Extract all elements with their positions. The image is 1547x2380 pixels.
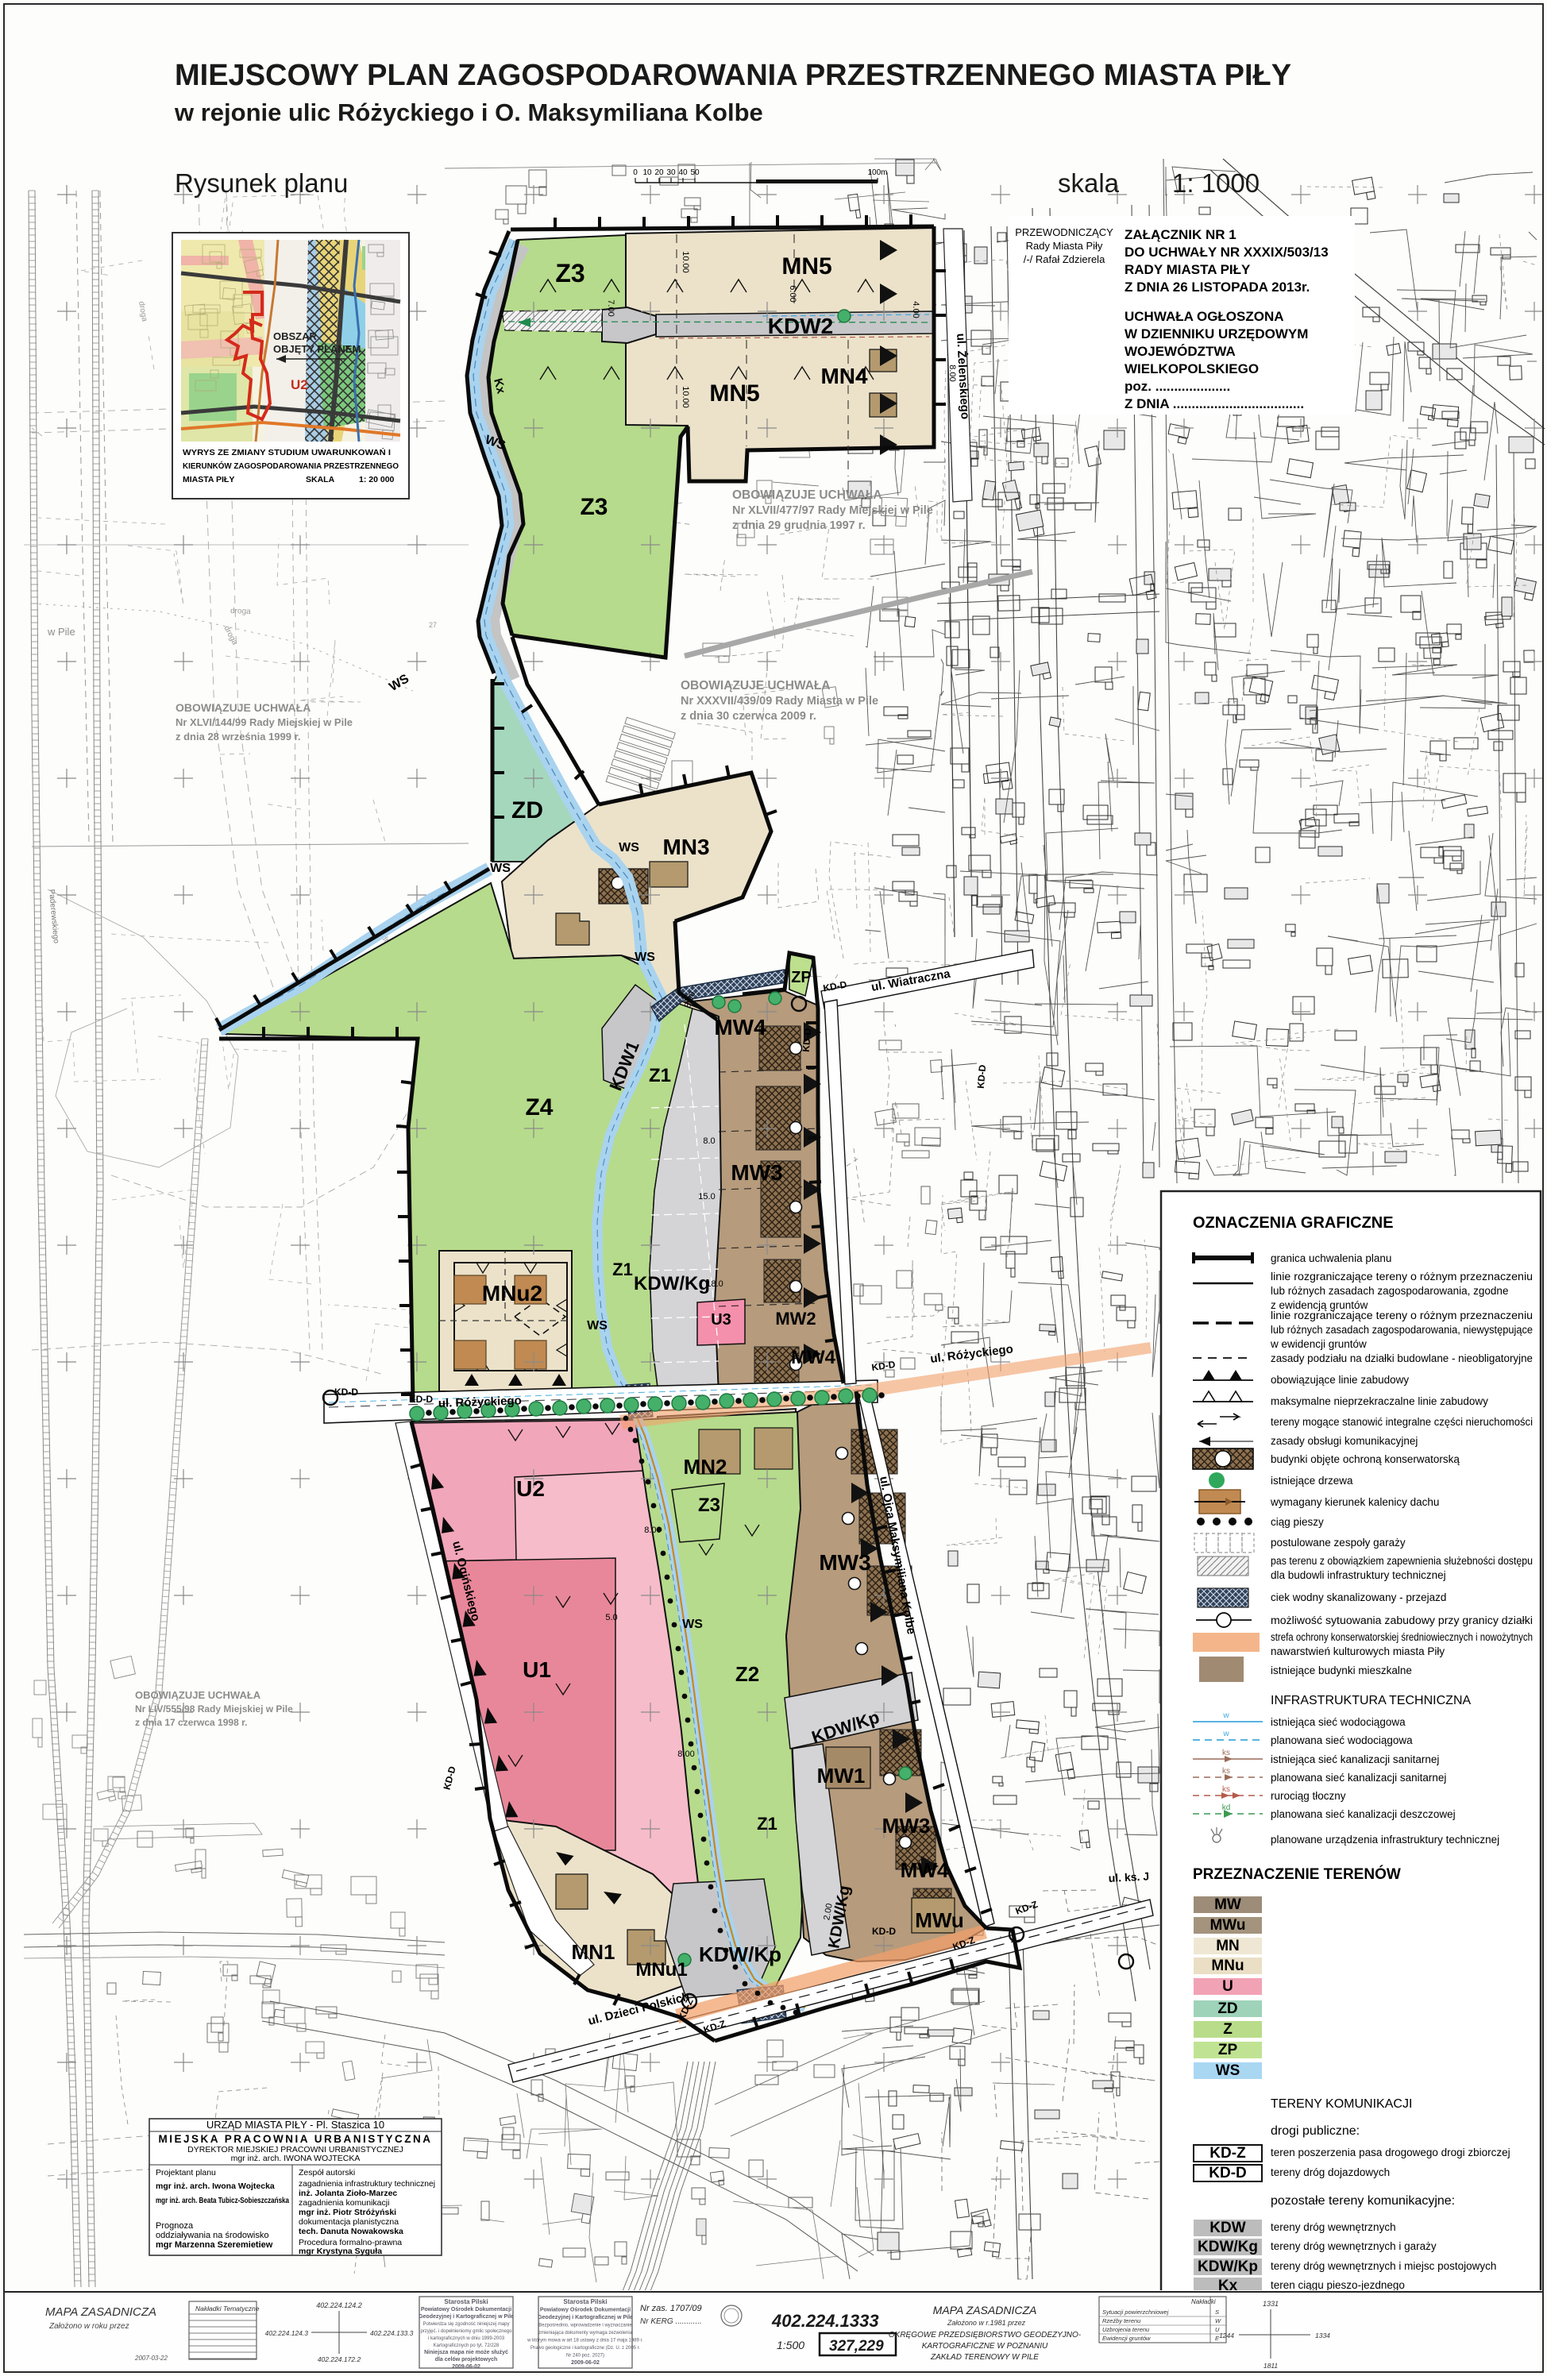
svg-text:w rejonie ulic Różyckiego i O.: w rejonie ulic Różyckiego i O. Maksymili… — [174, 98, 763, 126]
svg-text:10.00: 10.00 — [681, 386, 690, 408]
svg-text:1331: 1331 — [1263, 2300, 1279, 2308]
svg-text:8.00: 8.00 — [947, 365, 957, 381]
svg-text:MWu: MWu — [1209, 1917, 1245, 1934]
svg-text:tereny dróg wewnętrznych i gar: tereny dróg wewnętrznych i garaży — [1271, 2240, 1437, 2252]
svg-text:MIEJSKA PRACOWNIA URBANISTYCZN: MIEJSKA PRACOWNIA URBANISTYCZNA — [158, 2133, 432, 2145]
svg-text:KD-D: KD-D — [975, 1064, 989, 1089]
svg-text:dokumentacja planistyczna: dokumentacja planistyczna — [299, 2217, 399, 2227]
svg-text:Uzbrojenia terenu: Uzbrojenia terenu — [1102, 2326, 1150, 2333]
svg-text:OBOWIĄZUJE UCHWAŁA: OBOWIĄZUJE UCHWAŁA — [681, 679, 831, 692]
svg-text:KD-D: KD-D — [409, 1394, 433, 1405]
svg-text:mgr inż. arch. Beata Tubicz-So: mgr inż. arch. Beata Tubicz-Sobieszczańs… — [156, 2196, 289, 2205]
svg-text:8.0: 8.0 — [703, 1136, 715, 1146]
svg-text:granica uchwalenia planu: granica uchwalenia planu — [1271, 1252, 1391, 1264]
svg-text:1811: 1811 — [1263, 2362, 1279, 2370]
svg-text:MIASTA PIŁY: MIASTA PIŁY — [183, 475, 234, 484]
svg-text:MN2: MN2 — [684, 1455, 727, 1479]
svg-text:1: 1000: 1: 1000 — [1172, 168, 1260, 198]
svg-text:MWu: MWu — [915, 1908, 964, 1932]
svg-text:pas terenu z obowiązkiem zapew: pas terenu z obowiązkiem zapewnienia słu… — [1271, 1555, 1533, 1567]
svg-text:OBJĘTY PLANEM: OBJĘTY PLANEM — [273, 343, 361, 355]
svg-text:Prawo geologiczne i kartografi: Prawo geologiczne i kartograficzne (Dz. … — [530, 2346, 640, 2351]
svg-text:MNu1: MNu1 — [635, 1959, 687, 1981]
svg-text:istniejąca sieć wodociągowa: istniejąca sieć wodociągowa — [1271, 1716, 1406, 1728]
svg-text:WS: WS — [490, 862, 511, 875]
svg-text:OBOWIĄZUJE UCHWAŁA: OBOWIĄZUJE UCHWAŁA — [732, 488, 882, 502]
svg-text:ZAŁĄCZNIK NR 1: ZAŁĄCZNIK NR 1 — [1125, 227, 1236, 242]
svg-text:MN1: MN1 — [572, 1940, 615, 1964]
svg-text:Z: Z — [1223, 2021, 1233, 2038]
svg-text:KD-D: KD-D — [1209, 2165, 1247, 2181]
svg-text:z dnia 17 czerwca 1998 r.: z dnia 17 czerwca 1998 r. — [135, 1717, 247, 1728]
svg-text:planowana sieć kanalizacji des: planowana sieć kanalizacji deszczowej — [1271, 1808, 1456, 1820]
svg-text:ul. ks. J: ul. ks. J — [1108, 1869, 1149, 1884]
svg-text:MW3: MW3 — [731, 1160, 782, 1185]
svg-text:w ewidencji gruntów: w ewidencji gruntów — [1270, 1338, 1367, 1350]
svg-text:planowane urządzenia infrastru: planowane urządzenia infrastruktury tech… — [1271, 1834, 1499, 1846]
svg-text:Bezpośrednio, wprowadzenie i w: Bezpośrednio, wprowadzenie i wyznaczanie — [538, 2324, 632, 2328]
svg-text:Nakładki: Nakładki — [1191, 2298, 1216, 2305]
svg-text:Z3: Z3 — [555, 259, 584, 287]
svg-text:10.00: 10.00 — [681, 251, 690, 273]
svg-text:z dnia 29 grudnia 1997 r.: z dnia 29 grudnia 1997 r. — [732, 519, 866, 532]
svg-text:Z1: Z1 — [612, 1259, 633, 1279]
svg-text:8.00: 8.00 — [644, 1526, 661, 1535]
svg-text:tereny mogące stanowić integra: tereny mogące stanowić integralne części… — [1271, 1416, 1533, 1428]
svg-text:zasady obsługi komunikacyjnej: zasady obsługi komunikacyjnej — [1271, 1435, 1418, 1447]
svg-text:linie rozgraniczające tereny o: linie rozgraniczające tereny o różnym pr… — [1271, 1310, 1533, 1321]
svg-text:/-/ Rafał Zdzierela: /-/ Rafał Zdzierela — [1024, 253, 1105, 265]
svg-text:w Pile: w Pile — [47, 626, 75, 638]
svg-text:OKRĘGOWE PRZEDSIĘBIORSTWO GEOD: OKRĘGOWE PRZEDSIĘBIORSTWO GEODEZYJNO- — [889, 2331, 1082, 2339]
svg-text:Geodezyjnej i Kartograficznej: Geodezyjnej i Kartograficznej w Pile — [538, 2315, 633, 2320]
svg-text:OZNACZENIA GRAFICZNE: OZNACZENIA GRAFICZNE — [1193, 1214, 1394, 1232]
svg-text:WIELKOPOLSKIEGO: WIELKOPOLSKIEGO — [1125, 361, 1259, 376]
svg-text:postulowane zespoły garaży: postulowane zespoły garaży — [1271, 1537, 1406, 1549]
svg-text:linie rozgraniczające tereny o: linie rozgraniczające tereny o różnym pr… — [1271, 1271, 1533, 1283]
svg-text:Potwierdza się zgodność niniej: Potwierdza się zgodność niniejszej mapy — [422, 2322, 509, 2327]
svg-text:MN3: MN3 — [662, 835, 709, 859]
svg-text:U3: U3 — [711, 1311, 731, 1329]
svg-text:ZP: ZP — [1218, 2042, 1238, 2058]
svg-text:20: 20 — [654, 168, 664, 177]
svg-text:KDW2: KDW2 — [768, 314, 833, 338]
svg-text:KD-Z: KD-Z — [1209, 2145, 1246, 2162]
svg-text:tech. Danuta Nowakowska: tech. Danuta Nowakowska — [299, 2227, 403, 2236]
svg-text:w: w — [1222, 1711, 1229, 1720]
svg-text:Geodezyjnej i Kartograficznej: Geodezyjnej i Kartograficznej w Pile — [419, 2314, 514, 2320]
svg-text:KDW/Kp: KDW/Kp — [699, 1942, 781, 1966]
svg-text:MW1: MW1 — [817, 1764, 866, 1788]
svg-text:MW4: MW4 — [791, 1347, 836, 1368]
svg-text:MN4: MN4 — [820, 364, 868, 388]
svg-text:327,229: 327,229 — [829, 2338, 884, 2355]
svg-text:droga: droga — [230, 607, 251, 616]
svg-text:ciek wodny skanalizowany - prz: ciek wodny skanalizowany - przejazd — [1271, 1591, 1446, 1603]
svg-text:Rady Miasta Piły: Rady Miasta Piły — [1026, 240, 1103, 252]
svg-text:MN5: MN5 — [709, 380, 759, 407]
svg-text:ks: ks — [1222, 1749, 1230, 1757]
svg-text:ZP: ZP — [791, 969, 812, 986]
svg-text:Niniejsza mapa nie może służyć: Niniejsza mapa nie może służyć — [424, 2350, 508, 2355]
svg-text:U1: U1 — [523, 1657, 551, 1682]
svg-text:zagadnienia infrastruktury tec: zagadnienia infrastruktury technicznej — [299, 2179, 435, 2189]
svg-text:KDW/Kp: KDW/Kp — [1198, 2258, 1258, 2275]
svg-text:W DZIENNIKU URZĘDOWYM: W DZIENNIKU URZĘDOWYM — [1125, 326, 1308, 341]
svg-text:tereny dróg dojazdowych: tereny dróg dojazdowych — [1271, 2166, 1390, 2178]
svg-text:MW3: MW3 — [882, 1814, 931, 1838]
svg-text:402.224.1333: 402.224.1333 — [771, 2311, 879, 2331]
svg-text:pozostałe tereny komunikacyjne: pozostałe tereny komunikacyjne: — [1271, 2194, 1455, 2208]
svg-text:obowiązujące linie zabudowy: obowiązujące linie zabudowy — [1271, 1374, 1409, 1386]
svg-text:MAPA ZASADNICZA: MAPA ZASADNICZA — [933, 2304, 1037, 2316]
svg-text:skala: skala — [1058, 168, 1120, 198]
svg-text:istniejące budynki mieszkalne: istniejące budynki mieszkalne — [1271, 1664, 1412, 1676]
svg-text:Rysunek planu: Rysunek planu — [175, 168, 348, 198]
svg-text:402.224.133.3: 402.224.133.3 — [370, 2329, 414, 2337]
svg-text:MW2: MW2 — [775, 1309, 816, 1329]
svg-text:Nr 240 poz. 2027): Nr 240 poz. 2027) — [566, 2354, 604, 2359]
svg-text:nawarstwień kulturowych miasta: nawarstwień kulturowych miasta Piły — [1271, 1645, 1445, 1657]
svg-text:Nr XLVII/477/97 Rady Miejskiej: Nr XLVII/477/97 Rady Miejskiej w Pile — [732, 504, 933, 517]
svg-text:RADY MIASTA PIŁY: RADY MIASTA PIŁY — [1125, 262, 1251, 277]
svg-text:mgr inż. arch. IWONA WOJTECKA: mgr inż. arch. IWONA WOJTECKA — [231, 2154, 361, 2163]
svg-text:ZAKŁAD TERENOWY W PILE: ZAKŁAD TERENOWY W PILE — [930, 2353, 1039, 2362]
svg-text:Z1: Z1 — [649, 1065, 671, 1086]
svg-text:KDW/Kg: KDW/Kg — [634, 1273, 710, 1294]
svg-text:MIEJSCOWY PLAN ZAGOSPODAROWANI: MIEJSCOWY PLAN ZAGOSPODAROWANIA PRZESTRZ… — [175, 59, 1291, 92]
svg-text:U2: U2 — [516, 1476, 545, 1501]
svg-text:1: 20 000: 1: 20 000 — [359, 475, 395, 484]
svg-text:1334: 1334 — [1315, 2332, 1330, 2339]
svg-text:istniejąca sieć kanalizacji sa: istniejąca sieć kanalizacji sanitarnej — [1271, 1753, 1439, 1765]
svg-text:teren ciągu pieszo-jezdnego: teren ciągu pieszo-jezdnego — [1271, 2279, 1405, 2291]
svg-text:Zespół autorski: Zespół autorski — [299, 2168, 355, 2177]
svg-text:WYRYS ZE ZMIANY STUDIUM UWARUN: WYRYS ZE ZMIANY STUDIUM UWARUNKOWAŃ I — [183, 447, 391, 457]
svg-text:Założono w r.1981 przez: Założono w r.1981 przez — [947, 2319, 1026, 2327]
svg-text:7.00: 7.00 — [606, 299, 615, 316]
svg-text:KD-D: KD-D — [801, 1028, 814, 1052]
svg-text:PRZEWODNICZĄCY: PRZEWODNICZĄCY — [1015, 226, 1113, 238]
svg-text:teren poszerzenia pasa drogowe: teren poszerzenia pasa drogowego drogi z… — [1271, 2147, 1510, 2158]
svg-text:10: 10 — [642, 168, 652, 177]
svg-text:OBOWIĄZUJE UCHWAŁA: OBOWIĄZUJE UCHWAŁA — [135, 1689, 261, 1701]
svg-text:402.224.124.3: 402.224.124.3 — [265, 2329, 309, 2337]
svg-text:z dnia 30 czerwca 2009 r.: z dnia 30 czerwca 2009 r. — [681, 710, 816, 723]
svg-text:ZD: ZD — [511, 797, 543, 824]
svg-text:INFRASTRUKTURA TECHNICZNA: INFRASTRUKTURA TECHNICZNA — [1271, 1694, 1471, 1707]
svg-text:w którym mowa w art 18 ustawy: w którym mowa w art 18 ustawy z dnia 17 … — [527, 2339, 643, 2343]
svg-text:KDW/Kg: KDW/Kg — [1198, 2239, 1258, 2255]
svg-text:18.0: 18.0 — [706, 1279, 723, 1289]
svg-text:MW4: MW4 — [714, 1015, 766, 1040]
svg-text:U: U — [1222, 1978, 1233, 1995]
svg-text:1:500: 1:500 — [777, 2339, 804, 2351]
svg-text:istniejące drzewa: istniejące drzewa — [1271, 1475, 1353, 1487]
svg-text:W: W — [1215, 2317, 1221, 2324]
svg-text:możliwość sytuowania zabudowy: możliwość sytuowania zabudowy przy grani… — [1271, 1614, 1533, 1626]
svg-text:oddziaływania na środowisko: oddziaływania na środowisko — [156, 2231, 268, 2240]
svg-text:ZD: ZD — [1217, 2000, 1237, 2017]
svg-text:Z2: Z2 — [735, 1662, 759, 1686]
svg-text:dla budowli infrastruktury tec: dla budowli infrastruktury technicznej — [1271, 1569, 1446, 1581]
svg-text:Z1: Z1 — [757, 1814, 777, 1834]
svg-text:lub różnych zasadach zagospoda: lub różnych zasadach zagospodarowania, z… — [1271, 1285, 1508, 1297]
svg-text:WS: WS — [682, 1618, 703, 1631]
svg-text:U2: U2 — [291, 377, 308, 392]
svg-text:WOJEWÓDZTWA: WOJEWÓDZTWA — [1125, 344, 1236, 359]
svg-text:Z DNIA 26 LISTOPADA 2013r.: Z DNIA 26 LISTOPADA 2013r. — [1125, 280, 1310, 295]
svg-text:2009-06-02: 2009-06-02 — [452, 2364, 480, 2370]
svg-text:6.00: 6.00 — [788, 285, 797, 302]
svg-text:2009-06-02: 2009-06-02 — [571, 2360, 600, 2366]
svg-text:wymagany kierunek kalenicy dac: wymagany kierunek kalenicy dachu — [1270, 1496, 1439, 1508]
svg-text:inż. Jolanta Zioło-Marzec: inż. Jolanta Zioło-Marzec — [299, 2189, 397, 2198]
svg-text:30: 30 — [666, 168, 676, 177]
svg-text:27: 27 — [429, 621, 437, 629]
svg-text:DO UCHWAŁY NR XXXIX/503/13: DO UCHWAŁY NR XXXIX/503/13 — [1125, 245, 1329, 260]
svg-text:Powiatowy Ośrodek Dokumentacji: Powiatowy Ośrodek Dokumentacji — [421, 2307, 511, 2312]
svg-text:KD-D: KD-D — [872, 1926, 896, 1937]
svg-text:Z3: Z3 — [580, 494, 608, 520]
svg-text:KDW: KDW — [1209, 2220, 1245, 2236]
svg-text:MNu2: MNu2 — [482, 1281, 542, 1306]
svg-text:MN5: MN5 — [781, 253, 831, 280]
svg-text:UCHWAŁA OGŁOSZONA: UCHWAŁA OGŁOSZONA — [1125, 309, 1284, 324]
svg-text:402.224.124.2: 402.224.124.2 — [316, 2301, 362, 2309]
svg-text:budynki objęte ochroną konserw: budynki objęte ochroną konserwatorską — [1271, 1453, 1460, 1465]
svg-text:0: 0 — [633, 168, 638, 177]
svg-text:przyjęć. i dopełnieniomy gmlic: przyjęć. i dopełnieniomy gmlic społeczne… — [420, 2329, 512, 2334]
svg-text:PRZEZNACZENIE TERENÓW: PRZEZNACZENIE TERENÓW — [1193, 1865, 1401, 1883]
svg-text:KARTOGRAFICZNE W POZNANIU: KARTOGRAFICZNE W POZNANIU — [922, 2342, 1048, 2351]
svg-text:WS: WS — [587, 1319, 608, 1333]
svg-text:tereny dróg wewnętrznych i mie: tereny dróg wewnętrznych i miejsc postoj… — [1271, 2260, 1496, 2272]
svg-text:w: w — [1222, 1730, 1229, 1738]
svg-text:WS: WS — [619, 841, 639, 854]
svg-text:zagadnienia komunikacji: zagadnienia komunikacji — [299, 2198, 389, 2208]
svg-text:4.00: 4.00 — [911, 301, 920, 318]
svg-text:MAPA ZASADNICZA: MAPA ZASADNICZA — [45, 2305, 156, 2319]
svg-text:maksymalne nieprzekraczalne li: maksymalne nieprzekraczalne linie zabudo… — [1271, 1395, 1488, 1407]
svg-text:TERENY KOMUNIKACJI: TERENY KOMUNIKACJI — [1271, 2097, 1412, 2111]
svg-text:100m: 100m — [867, 168, 887, 177]
svg-text:planowana sieć wodociągowa: planowana sieć wodociągowa — [1271, 1734, 1413, 1746]
svg-text:S: S — [1215, 2309, 1219, 2316]
svg-text:i kartograficznych w dniu 199: i kartograficznych w dniu 1999-2003 — [428, 2336, 505, 2341]
svg-text:Nr LIV/555/98 Rady Miejskiej w: Nr LIV/555/98 Rady Miejskiej w Pile — [135, 1703, 293, 1715]
svg-text:5.0: 5.0 — [605, 1613, 617, 1622]
svg-text:lub różnych zasadach zagospoda: lub różnych zasadach zagospodarowania, n… — [1271, 1324, 1533, 1336]
svg-text:MNu: MNu — [1211, 1958, 1244, 1974]
svg-text:SKALA: SKALA — [306, 475, 335, 484]
svg-text:Nr zas. 1707/09: Nr zas. 1707/09 — [640, 2304, 702, 2313]
svg-text:50: 50 — [690, 168, 700, 177]
svg-text:Sytuacji powierzchniowej: Sytuacji powierzchniowej — [1102, 2309, 1169, 2316]
svg-text:Nr XXXVII/439/09 Rady Miasta w: Nr XXXVII/439/09 Rady Miasta w Pile — [681, 695, 878, 708]
svg-text:Z3: Z3 — [698, 1495, 720, 1516]
svg-text:WS: WS — [635, 951, 655, 964]
svg-text:mgr inż. arch. Iwona Wojtecka: mgr inż. arch. Iwona Wojtecka — [156, 2181, 275, 2191]
svg-text:WS: WS — [1216, 2062, 1240, 2079]
svg-text:MW3: MW3 — [819, 1550, 870, 1575]
svg-text:Nr XLVI/144/99 Rady Miejskiej: Nr XLVI/144/99 Rady Miejskiej w Pile — [176, 716, 353, 728]
svg-text:ks: ks — [1222, 1785, 1230, 1794]
svg-text:MN: MN — [1216, 1938, 1240, 1954]
svg-text:Ewidencji gruntów: Ewidencji gruntów — [1102, 2335, 1151, 2342]
svg-text:Powiatowy Ośrodek Dokumentacji: Powiatowy Ośrodek Dokumentacji — [540, 2308, 631, 2313]
svg-text:ks: ks — [1222, 1767, 1230, 1776]
svg-text:8.00: 8.00 — [677, 1749, 694, 1759]
svg-text:Rzeźby terenu: Rzeźby terenu — [1102, 2317, 1141, 2324]
svg-text:Prognoza: Prognoza — [156, 2221, 194, 2231]
svg-text:KIERUNKÓW ZAGOSPODAROWANIA PRZ: KIERUNKÓW ZAGOSPODAROWANIA PRZESTRZENNEG… — [183, 461, 399, 471]
svg-text:MW: MW — [1214, 1896, 1241, 1913]
svg-text:zmieniająca dokumenty wymaga z: zmieniająca dokumenty wymaga zezwolenia — [538, 2331, 633, 2336]
svg-text:kd: kd — [1222, 1803, 1231, 1812]
svg-text:dla celów projektowych: dla celów projektowych — [435, 2357, 498, 2363]
svg-text:tereny dróg wewnętrznych: tereny dróg wewnętrznych — [1271, 2221, 1396, 2233]
svg-text:402.224.172.2: 402.224.172.2 — [318, 2355, 361, 2363]
svg-text:drogi publiczne:: drogi publiczne: — [1271, 2124, 1360, 2138]
svg-text:ciąg pieszy: ciąg pieszy — [1271, 1516, 1324, 1528]
svg-text:mgr Marzenna Szeremietiew: mgr Marzenna Szeremietiew — [156, 2240, 273, 2250]
svg-text:40: 40 — [678, 168, 688, 177]
svg-text:OBOWIĄZUJE UCHWAŁA: OBOWIĄZUJE UCHWAŁA — [176, 701, 311, 714]
svg-text:Starosta Pilski: Starosta Pilski — [444, 2298, 488, 2305]
svg-text:Starosta Pilski: Starosta Pilski — [563, 2298, 607, 2305]
svg-text:zasady podziału na działki bud: zasady podziału na działki budowlane - n… — [1271, 1352, 1533, 1364]
svg-text:1244: 1244 — [1219, 2332, 1234, 2339]
svg-text:Założono w roku przez: Założono w roku przez — [48, 2322, 129, 2331]
svg-text:mgr inż. Piotr Stróżyński: mgr inż. Piotr Stróżyński — [299, 2208, 396, 2217]
svg-text:Kartograficznych po tyt. 72/: Kartograficznych po tyt. 72/228 — [434, 2343, 500, 2348]
svg-text:Nakładki Tematyczne: Nakładki Tematyczne — [195, 2305, 260, 2312]
svg-text:2007-03-22: 2007-03-22 — [134, 2355, 168, 2362]
svg-text:15.0: 15.0 — [698, 1192, 715, 1202]
svg-text:planowana sieć kanalizacji san: planowana sieć kanalizacji sanitarnej — [1271, 1772, 1446, 1784]
svg-text:URZĄD MIASTA PIŁY - Pl. Staszi: URZĄD MIASTA PIŁY - Pl. Staszica 10 — [206, 2119, 384, 2131]
svg-text:mgr Krystyna Syguła: mgr Krystyna Syguła — [299, 2247, 382, 2256]
svg-text:Projektant planu: Projektant planu — [156, 2168, 216, 2177]
svg-text:z dnia 28 września 1999 r.: z dnia 28 września 1999 r. — [176, 731, 301, 743]
svg-text:Z DNIA .......................: Z DNIA .................................… — [1125, 396, 1304, 411]
svg-text:rurociąg tłoczny: rurociąg tłoczny — [1271, 1790, 1346, 1802]
svg-text:Nr KERG ............: Nr KERG ............ — [640, 2317, 702, 2326]
svg-text:Z4: Z4 — [525, 1094, 553, 1121]
svg-text:poz. ....................: poz. .................... — [1125, 379, 1230, 394]
svg-text:OBSZAR: OBSZAR — [273, 330, 318, 342]
svg-text:MW4: MW4 — [901, 1858, 949, 1882]
svg-text:strefa ochrony konserwatorskie: strefa ochrony konserwatorskiej średniow… — [1271, 1631, 1533, 1643]
